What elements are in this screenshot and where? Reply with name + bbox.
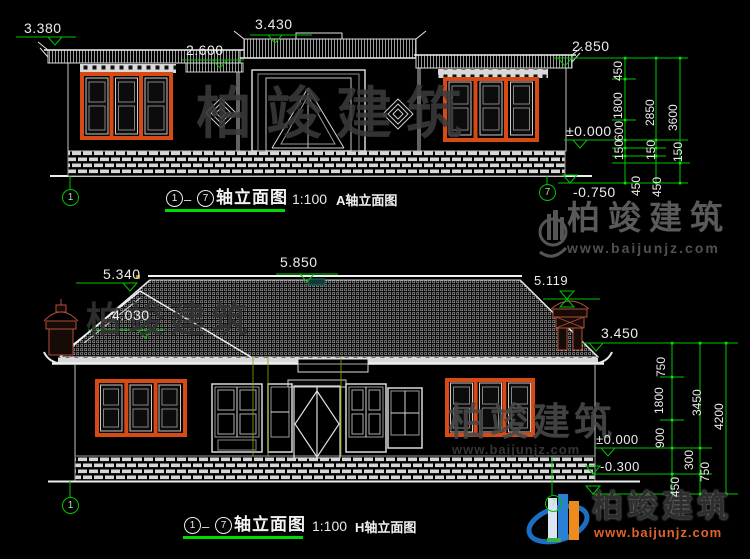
axis-bubble-7: 7 <box>545 495 562 512</box>
title-axis-start: 1 <box>184 517 201 534</box>
elevation-label-left-eave: 2.600 <box>186 43 224 57</box>
dim-label: 600 <box>613 121 625 141</box>
dim-label: 1800 <box>653 387 665 414</box>
watermark-logo-gray <box>540 210 566 256</box>
diamond-door <box>294 386 340 458</box>
dim-label: 150 <box>613 140 625 160</box>
top-left-window-panes <box>86 78 167 134</box>
watermark-site-bottom-right: www.baijunjz.com <box>594 526 722 539</box>
watermark-brand-bottom-center: 柏竣建筑 <box>448 404 616 442</box>
elevation-label-top-ground: -0.750 <box>573 185 616 199</box>
elevation-label-main-ridge: 5.850 <box>280 255 318 269</box>
dim-label: 450 <box>630 176 642 196</box>
dim-label: 4200 <box>713 403 725 430</box>
top-right-cornice <box>438 69 548 78</box>
top-title-scale: 1:100 <box>292 192 327 206</box>
elevation-label-left-slope: 4.030 <box>112 308 150 322</box>
title-dash: – <box>202 520 209 533</box>
watermark-brand-top-right: 柏竣建筑 <box>567 201 731 234</box>
left-chimney <box>44 299 78 355</box>
bottom-title-scale: 1:100 <box>312 519 347 533</box>
dim-label: 750 <box>699 462 711 482</box>
watermark-brand-top-center: 柏竣建筑 <box>196 86 476 142</box>
top-title: 轴立面图 <box>216 189 288 206</box>
elevation-label-right-eave: 2.850 <box>572 39 610 53</box>
title-dash: – <box>184 193 191 206</box>
title-axis-start: 1 <box>166 190 183 207</box>
bottom-left-window-panes <box>101 385 181 431</box>
dim-label: 150 <box>672 142 684 162</box>
ridge-cap <box>308 279 325 285</box>
top-title-underline <box>165 209 285 212</box>
title-axis-end: 7 <box>215 517 232 534</box>
top-brick-plinth <box>68 151 565 176</box>
axis-bubble-1: 1 <box>62 189 79 206</box>
dim-label: 3600 <box>667 104 679 131</box>
elevation-label-left-ridge: 5.340 <box>103 267 141 281</box>
elevation-label-bottom-floor: ±0.000 <box>596 433 639 446</box>
watermark-site-top-right: www.baijunjz.com <box>567 241 720 255</box>
dim-label: 300 <box>683 450 695 470</box>
bottom-title-underline <box>183 536 303 539</box>
watermark-site-bottom-center: www.baijunjz.com <box>452 443 580 456</box>
top-left-cornice <box>80 64 176 73</box>
dim-label: 750 <box>655 357 667 377</box>
dim-label: 450 <box>651 177 663 197</box>
elevation-label-eave: 3.450 <box>601 326 639 340</box>
entry-canopy <box>298 359 368 372</box>
watermark-brand-bottom-right: 柏竣建筑 <box>592 491 732 522</box>
bottom-title: 轴立面图 <box>234 516 306 533</box>
elevation-label-left-tip: 3.380 <box>24 21 62 35</box>
dim-label: 3450 <box>691 389 703 416</box>
elevation-label-chimney: 5.119 <box>534 274 568 287</box>
top-subtitle: A轴立面图 <box>336 194 397 207</box>
elevation-label-gate-ridge: 3.430 <box>255 17 293 31</box>
bottom-brick-plinth <box>75 456 595 481</box>
cad-canvas: 柏竣建筑 柏竣建筑 www.baijunjz.com 柏竣建筑 柏竣建筑 www… <box>0 0 750 559</box>
axis-bubble-1: 1 <box>62 497 79 514</box>
dim-label: 150 <box>645 140 657 160</box>
dim-label: 2850 <box>644 99 656 126</box>
bottom-subtitle: H轴立面图 <box>355 521 416 534</box>
dim-label: 450 <box>669 477 681 497</box>
dim-label: 900 <box>654 428 666 448</box>
dim-label: 450 <box>612 61 624 81</box>
elevation-label-plinth: -0.300 <box>600 460 640 473</box>
dim-label: 1800 <box>612 92 624 119</box>
title-axis-end: 7 <box>197 190 214 207</box>
elevation-label-top-floor: ±0.000 <box>566 124 612 138</box>
axis-bubble-7: 7 <box>539 184 556 201</box>
